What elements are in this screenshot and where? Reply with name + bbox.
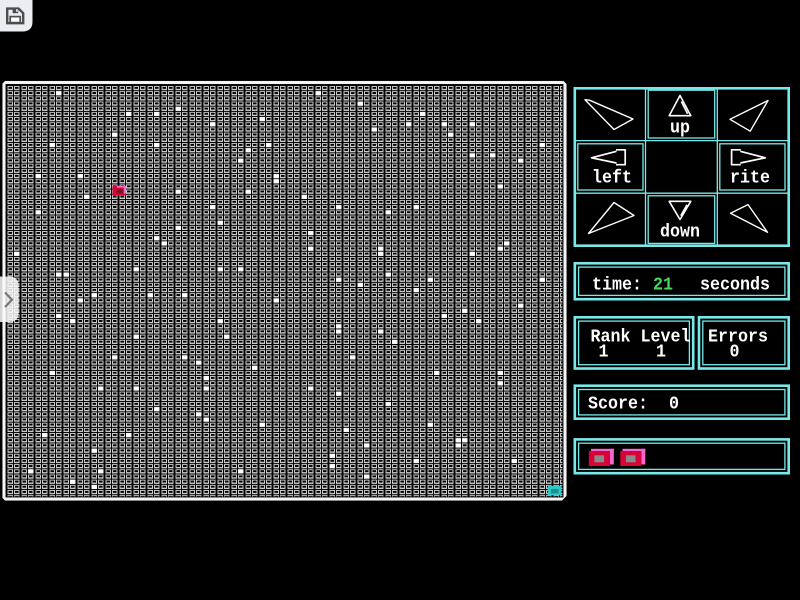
svg-text:0: 0: [730, 343, 740, 363]
svg-text:time:: time:: [592, 276, 642, 296]
svg-text:down: down: [660, 223, 700, 243]
svg-text:1: 1: [656, 343, 666, 363]
svg-text:Score:: Score:: [588, 395, 648, 415]
svg-text:left: left: [592, 169, 632, 189]
svg-text:seconds: seconds: [700, 276, 770, 296]
svg-text:1: 1: [599, 343, 609, 363]
svg-text:21: 21: [653, 276, 673, 296]
svg-text:0: 0: [669, 395, 679, 415]
svg-text:rite: rite: [730, 169, 770, 189]
svg-text:up: up: [670, 119, 690, 139]
